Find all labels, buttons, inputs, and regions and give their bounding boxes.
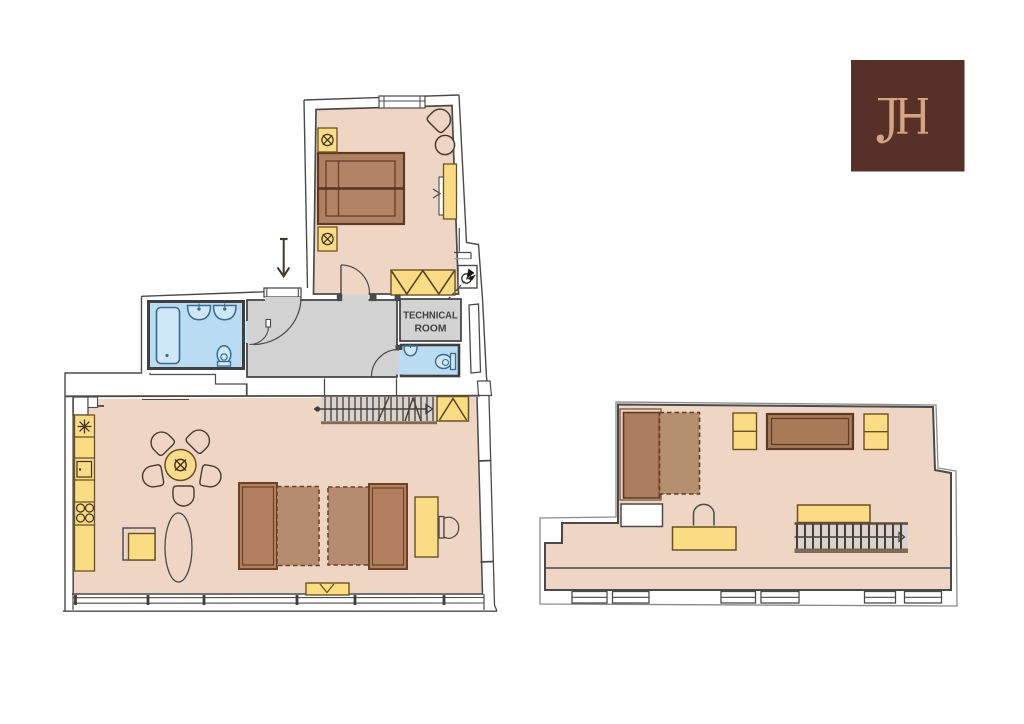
svg-text:ROOM: ROOM	[415, 324, 447, 335]
svg-text:TECHNICAL: TECHNICAL	[403, 311, 458, 322]
